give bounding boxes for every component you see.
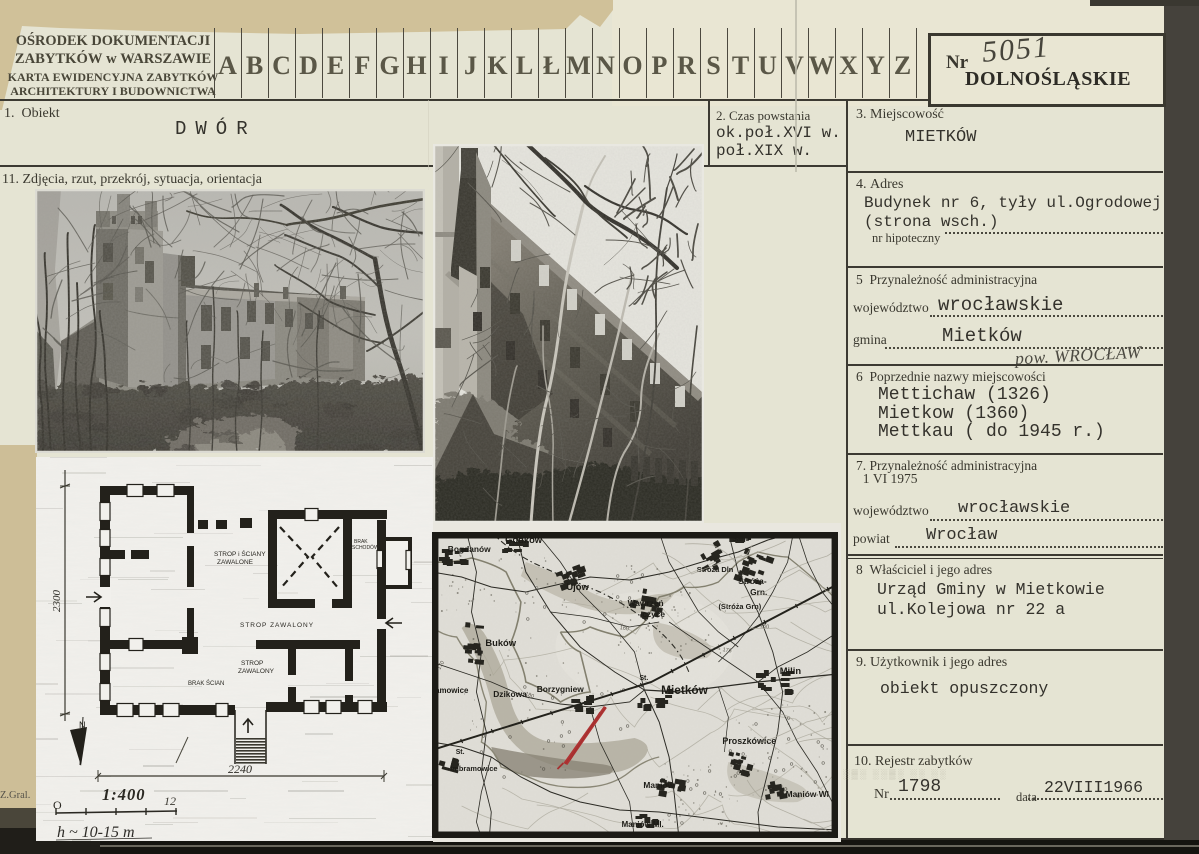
svg-text:1:400: 1:400 xyxy=(102,785,146,804)
svg-text:2300: 2300 xyxy=(51,590,63,613)
svg-text:BRAK ŚCIAN: BRAK ŚCIAN xyxy=(188,679,224,687)
svg-text:STROP ZAWALONY: STROP ZAWALONY xyxy=(240,622,314,629)
svg-text:St.: St. xyxy=(456,749,465,756)
svg-text:ZAWALONE: ZAWALONE xyxy=(217,559,254,566)
svg-text:STROP: STROP xyxy=(241,660,263,667)
svg-text:Milin: Milin xyxy=(780,666,802,677)
svg-text:-czyce: -czyce xyxy=(639,609,665,619)
svg-text:O: O xyxy=(53,798,62,812)
svg-text:Dzikowa: Dzikowa xyxy=(493,689,527,699)
svg-text:Buków: Buków xyxy=(485,638,516,649)
svg-text:Proszkówice: Proszkówice xyxy=(722,736,776,746)
svg-text:Bogdanów: Bogdanów xyxy=(448,544,491,554)
svg-text:Maniów: Maniów xyxy=(643,780,674,790)
svg-text:Borzygniew: Borzygniew xyxy=(537,684,584,694)
svg-text:ZAWALONY: ZAWALONY xyxy=(238,668,275,675)
svg-text:Stróża-: Stróża- xyxy=(738,576,767,586)
svg-text:STROP i ŚCIANY: STROP i ŚCIANY xyxy=(214,549,266,558)
svg-text:St.: St. xyxy=(639,675,648,682)
svg-text:Maniów Ml.: Maniów Ml. xyxy=(622,820,664,829)
svg-text:Wawrzeń: Wawrzeń xyxy=(628,598,664,608)
svg-text:SCHODÓW: SCHODÓW xyxy=(352,544,379,551)
svg-text:Mietków: Mietków xyxy=(661,683,708,697)
svg-text:2240: 2240 xyxy=(228,762,252,776)
svg-text:Maniów Wl: Maniów Wl xyxy=(786,789,829,799)
svg-text:Ujów: Ujów xyxy=(566,582,589,593)
svg-text:12: 12 xyxy=(164,794,176,808)
svg-text:(Stróża Grn): (Stróża Grn) xyxy=(718,602,761,611)
svg-text:-Imbramowice: -Imbramowice xyxy=(448,764,498,773)
